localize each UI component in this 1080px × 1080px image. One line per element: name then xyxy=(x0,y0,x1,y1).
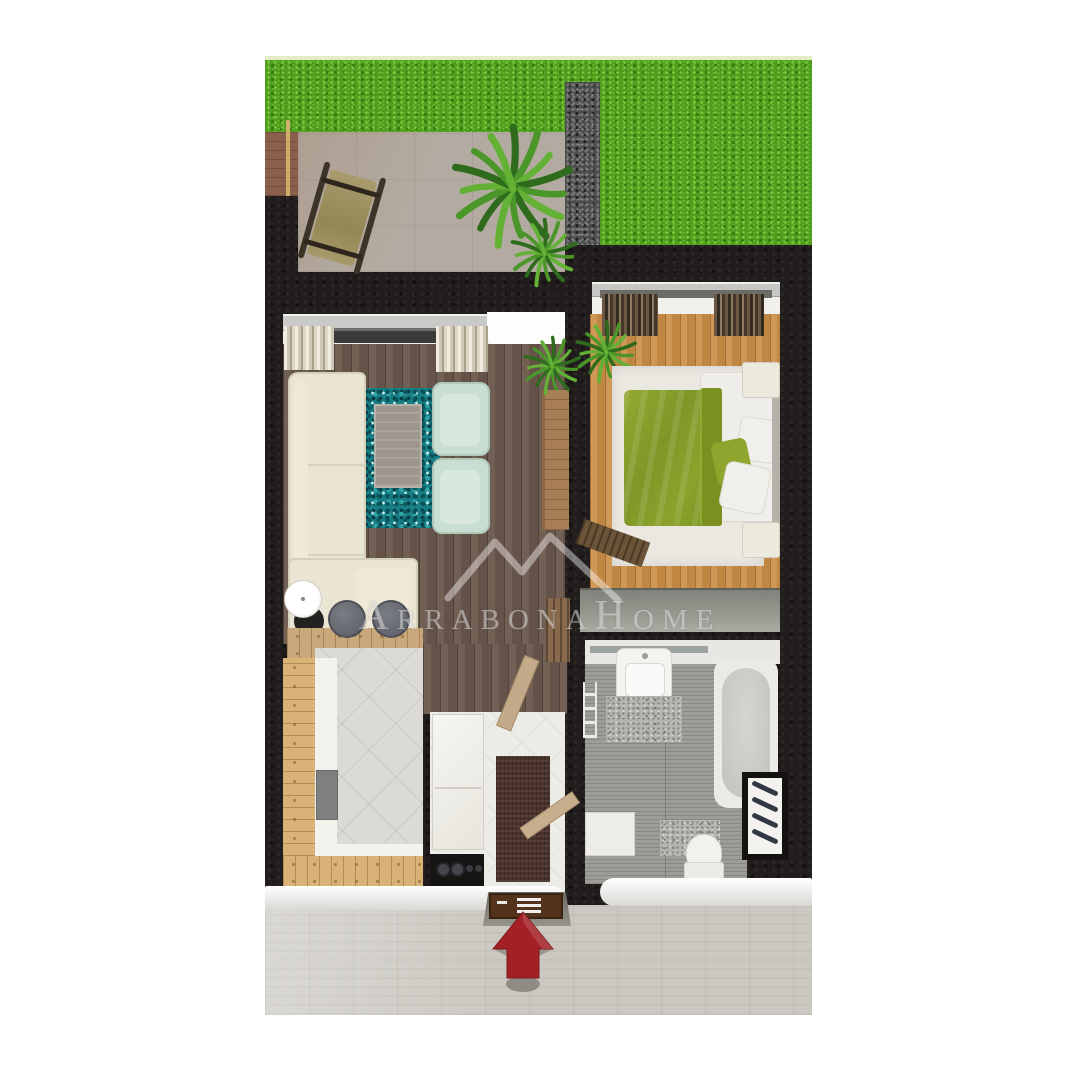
watermark-text: ArrabonaHome xyxy=(290,592,790,640)
bedroom-curtain-right xyxy=(714,294,764,336)
entrance-arrow-icon xyxy=(480,900,570,1000)
towel-ladder xyxy=(583,682,597,738)
radiator-bar-3 xyxy=(751,812,778,828)
living-window-frame xyxy=(330,328,442,343)
grass-over-path xyxy=(565,60,600,82)
living-curtain-right xyxy=(436,326,488,372)
shoe-3 xyxy=(466,865,473,872)
shoe-1 xyxy=(436,862,451,877)
living-plant xyxy=(524,336,580,400)
wardrobe-split xyxy=(435,787,481,789)
kitchen-cooktop xyxy=(316,770,338,820)
fence-post xyxy=(286,120,290,196)
bath-mat-1 xyxy=(606,696,682,742)
radiator-bar-4 xyxy=(751,828,778,844)
baseboard-right xyxy=(600,878,812,906)
kitchen-worktop xyxy=(315,658,337,858)
floor-plan-canvas: ArrabonaHome xyxy=(0,0,1080,1080)
armchair-2-seat xyxy=(440,470,480,524)
terrace-plant xyxy=(450,125,590,275)
armchair-1 xyxy=(432,382,490,456)
radiator-bar-2 xyxy=(751,796,778,812)
radiator-niche xyxy=(742,772,788,860)
nightstand-bottom xyxy=(742,522,780,558)
deck-strip xyxy=(265,132,298,196)
wardrobe xyxy=(432,714,484,850)
sink-basin xyxy=(625,663,665,697)
bathroom-sink xyxy=(616,648,672,702)
sink-faucet xyxy=(642,653,648,659)
bath-cabinet xyxy=(585,812,635,856)
shoe-rack xyxy=(430,852,484,888)
sofa-cushion-line-2 xyxy=(308,554,364,556)
grass-right xyxy=(600,60,812,245)
radiator-bar-1 xyxy=(751,780,778,796)
sofa-cushion-line-1 xyxy=(308,464,364,466)
pillow-white-2 xyxy=(718,460,773,517)
tv-sideboard xyxy=(542,390,569,530)
shoe-2 xyxy=(450,862,465,877)
coffee-table xyxy=(374,404,422,488)
radiator-panel xyxy=(748,778,782,854)
armchair-1-seat xyxy=(440,394,480,446)
nightstand-top xyxy=(742,362,780,398)
grass-left xyxy=(265,60,565,132)
living-curtain-left xyxy=(284,326,334,370)
shoe-4 xyxy=(475,865,482,872)
armchair-2 xyxy=(432,458,490,534)
